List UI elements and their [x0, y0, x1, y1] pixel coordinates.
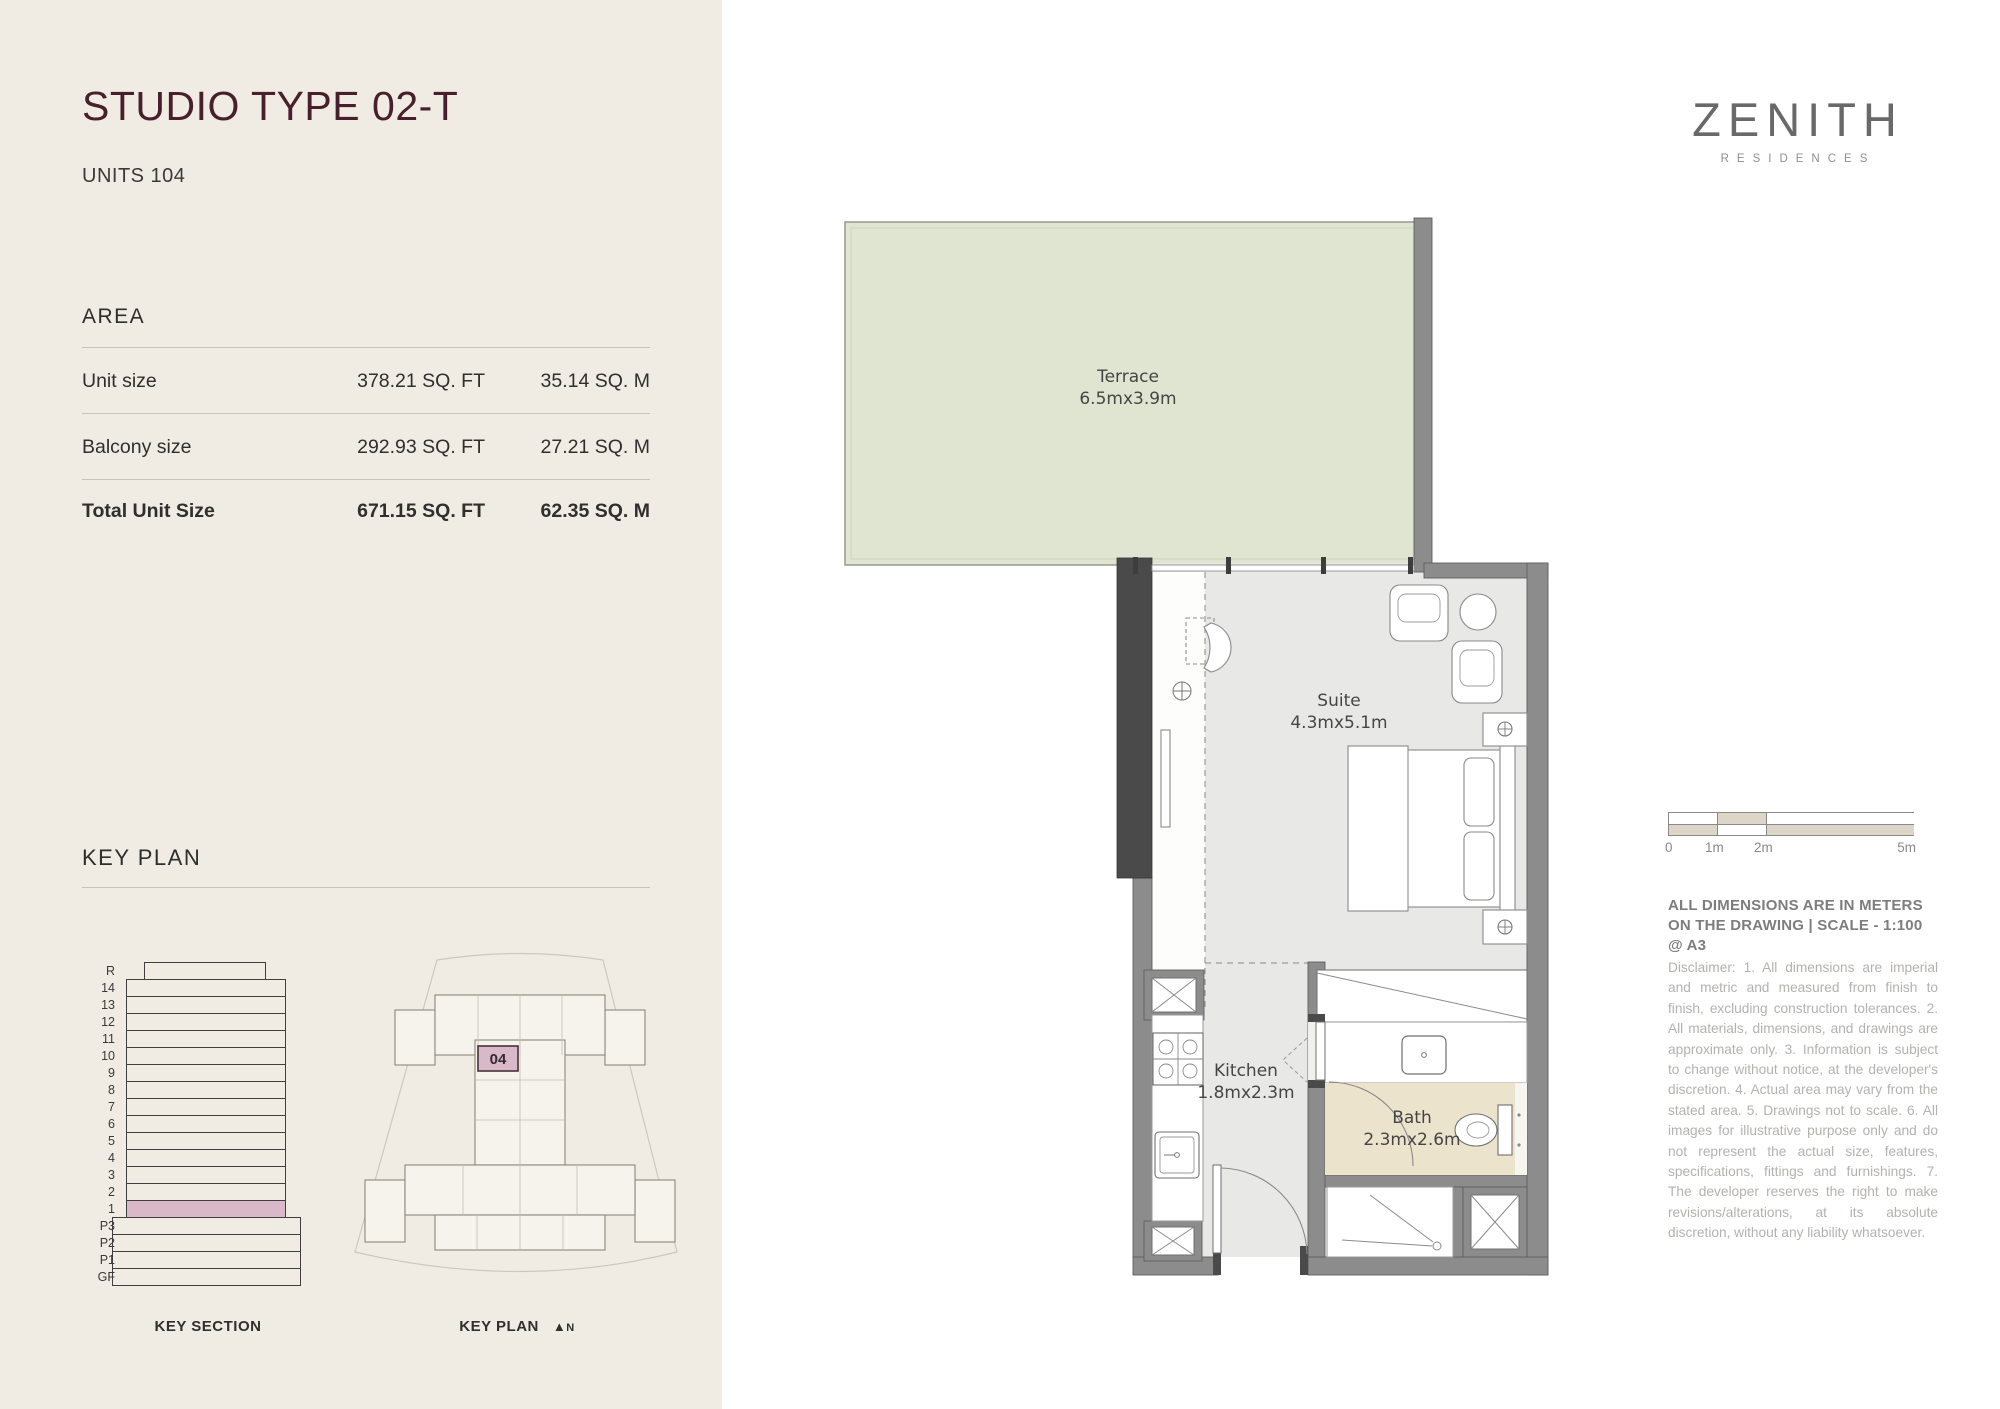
- floor-label: 10: [88, 1048, 126, 1065]
- floor-label: 14: [88, 980, 126, 997]
- left-panel: STUDIO TYPE 02-T UNITS 104 AREA Unit siz…: [0, 0, 722, 1409]
- area-row-label: Total Unit Size: [82, 500, 295, 523]
- scale-label-1m: 1m: [1705, 840, 1724, 855]
- key-section-floor-row: 10: [88, 1048, 301, 1065]
- floor-label: 12: [88, 1014, 126, 1031]
- floor-label: 9: [88, 1065, 126, 1082]
- key-section-floor-row: 12: [88, 1014, 301, 1031]
- key-section-floor-row: 7: [88, 1099, 301, 1116]
- floor-bar: [112, 1251, 301, 1269]
- room-label-suite: Suite 4.3mx5.1m: [1290, 690, 1387, 734]
- floor-bar: [126, 1064, 286, 1082]
- tv-unit-icon: [1161, 730, 1170, 827]
- key-section-floors: R1413121110987654321P3P2P1GF: [88, 963, 301, 1286]
- basin-icon: [1402, 1036, 1446, 1074]
- highlighted-floor-bar: [126, 1200, 286, 1218]
- kitchen-fixtures: [1152, 1015, 1203, 1221]
- scale-bar: 0 1m 2m 5m: [1668, 812, 1914, 858]
- ceiling-light-icon: [1173, 682, 1191, 700]
- floor-bar: [126, 1183, 286, 1201]
- floor-bar: [126, 1166, 286, 1184]
- key-section-floor-row: 11: [88, 1031, 301, 1048]
- floor-bar: [126, 1013, 286, 1031]
- highlighted-unit-number: 04: [490, 1051, 507, 1068]
- key-section-floor-row: P2: [88, 1235, 301, 1252]
- key-section-floor-row: 3: [88, 1167, 301, 1184]
- key-section-floor-row: 6: [88, 1116, 301, 1133]
- key-plan-caption-text: KEY PLAN: [459, 1318, 539, 1335]
- key-section-floor-row: 4: [88, 1150, 301, 1167]
- north-arrow-icon: ▲: [553, 1319, 566, 1334]
- floor-label: 13: [88, 997, 126, 1014]
- area-row-label: Balcony size: [82, 436, 295, 459]
- floor-bar: [112, 1217, 301, 1235]
- key-section-floor-row: 14: [88, 980, 301, 997]
- floor-bar: [126, 1098, 286, 1116]
- floor-label: 11: [88, 1031, 126, 1048]
- floor-bar: [112, 1268, 301, 1286]
- floor-bar: [126, 1030, 286, 1048]
- floor-label: 1: [88, 1201, 126, 1218]
- bed-icon: [1348, 744, 1515, 912]
- key-section-floor-row: 8: [88, 1082, 301, 1099]
- key-section-floor-row: 9: [88, 1065, 301, 1082]
- key-plan-heading: KEY PLAN: [82, 845, 650, 888]
- wall-dark-suite-left: [1117, 558, 1152, 878]
- key-section-caption: KEY SECTION: [88, 1318, 328, 1335]
- bath-fixtures: [1325, 1022, 1527, 1175]
- north-label: N: [566, 1322, 574, 1334]
- dimensions-note: ALL DIMENSIONS ARE IN METERS ON THE DRAW…: [1668, 896, 1940, 955]
- key-plan-caption: KEY PLAN▲N: [392, 1318, 642, 1335]
- floor-label: 6: [88, 1116, 126, 1133]
- room-label-kitchen: Kitchen 1.8mx2.3m: [1197, 1060, 1294, 1104]
- key-section-floor-row: R: [88, 963, 301, 980]
- key-section-floor-row: 2: [88, 1184, 301, 1201]
- floor-label: 5: [88, 1133, 126, 1150]
- nightstand-icon: [1483, 910, 1527, 944]
- nightstand-icon: [1483, 713, 1527, 746]
- floor-bar: [126, 1081, 286, 1099]
- area-table: AREA Unit size 378.21 SQ. FT 35.14 SQ. M…: [82, 305, 650, 543]
- room-label-terrace: Terrace 6.5mx3.9m: [1079, 366, 1176, 410]
- floor-bar: [126, 1132, 286, 1150]
- floor-bar: [126, 1149, 286, 1167]
- floor-bar: [126, 979, 286, 997]
- disclaimer-text: Disclaimer: 1. All dimensions are imperi…: [1668, 958, 1938, 1244]
- armchair-icon: [1390, 585, 1448, 641]
- round-table-icon: [1460, 594, 1496, 630]
- floor-label: 7: [88, 1099, 126, 1116]
- floor-label: 4: [88, 1150, 126, 1167]
- scale-label-5m: 5m: [1897, 840, 1916, 855]
- sink-icon: [1155, 1132, 1199, 1178]
- area-row-sqft: 378.21 SQ. FT: [295, 370, 485, 393]
- table-row-total: Total Unit Size 671.15 SQ. FT 62.35 SQ. …: [82, 479, 650, 543]
- wardrobe: [1317, 970, 1527, 1022]
- table-row: Unit size 378.21 SQ. FT 35.14 SQ. M: [82, 347, 650, 413]
- brand-tagline: RESIDENCES: [1677, 153, 1919, 165]
- floor-bar: [126, 1115, 286, 1133]
- scale-label-0: 0: [1665, 840, 1673, 855]
- bath-shaft: [1463, 1187, 1527, 1257]
- area-row-sqm: 62.35 SQ. M: [485, 500, 650, 523]
- key-section-floor-row: 1: [88, 1201, 301, 1218]
- key-section-floor-row: 5: [88, 1133, 301, 1150]
- area-heading: AREA: [82, 305, 650, 329]
- shower-room: [1327, 1187, 1453, 1257]
- scale-label-2m: 2m: [1754, 840, 1773, 855]
- key-plan-diagram: 04: [340, 950, 700, 1310]
- floor-label: 3: [88, 1167, 126, 1184]
- room-label-bath: Bath 2.3mx2.6m: [1363, 1107, 1460, 1151]
- area-row-sqft: 671.15 SQ. FT: [295, 500, 485, 523]
- key-section-floor-row: 13: [88, 997, 301, 1014]
- area-row-sqm: 35.14 SQ. M: [485, 370, 650, 393]
- floor-label: R: [88, 963, 126, 980]
- brand-name: ZENITH: [1677, 92, 1919, 147]
- floor-bar: [112, 1234, 301, 1252]
- floor-bar: [144, 962, 266, 980]
- brochure-page: STUDIO TYPE 02-T UNITS 104 AREA Unit siz…: [0, 0, 2000, 1409]
- floor-bar: [126, 996, 286, 1014]
- key-section-floor-row: P3: [88, 1218, 301, 1235]
- floor-label: 2: [88, 1184, 126, 1201]
- key-section-floor-row: P1: [88, 1252, 301, 1269]
- brand-logo: ZENITH RESIDENCES: [1677, 92, 1919, 165]
- floor-bar: [126, 1047, 286, 1065]
- floor-label: 8: [88, 1082, 126, 1099]
- key-section-floor-row: GF: [88, 1269, 301, 1286]
- area-row-sqm: 27.21 SQ. M: [485, 436, 650, 459]
- table-row: Balcony size 292.93 SQ. FT 27.21 SQ. M: [82, 413, 650, 479]
- area-row-sqft: 292.93 SQ. FT: [295, 436, 485, 459]
- units-label: UNITS 104: [82, 165, 185, 188]
- page-title: STUDIO TYPE 02-T: [82, 83, 458, 130]
- area-row-label: Unit size: [82, 370, 295, 393]
